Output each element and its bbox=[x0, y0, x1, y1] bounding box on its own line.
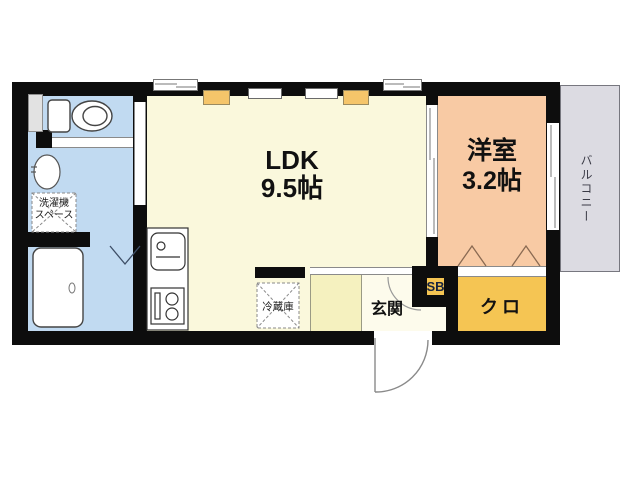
closet-folding-door-mark-left bbox=[458, 246, 486, 266]
western-room-size: 3.2帖 bbox=[438, 166, 546, 196]
balcony-label: バルコニー bbox=[573, 141, 599, 237]
washer-space-line2: スペース bbox=[28, 210, 80, 222]
vanity-sink-icon bbox=[31, 155, 60, 189]
entry-door-arc bbox=[375, 338, 428, 392]
washer-space-label: 洗濯機 スペース bbox=[28, 198, 80, 221]
shoe-box-label: SB bbox=[424, 279, 447, 294]
washer-space-line1: 洗濯機 bbox=[28, 198, 80, 210]
floor-plan: LDK 9.5帖 洋室 3.2帖 玄関 クロ SB 冷蔵庫 洗濯機 スペース バ… bbox=[0, 0, 640, 480]
ldk-name: LDK bbox=[180, 146, 404, 174]
bathroom-folding-door-mark bbox=[110, 246, 140, 264]
bathtub-icon bbox=[33, 248, 83, 327]
ldk-label: LDK 9.5帖 bbox=[180, 146, 404, 202]
entrance-label: 玄関 bbox=[360, 295, 414, 319]
closet-folding-door-mark-right bbox=[512, 246, 540, 266]
ldk-size: 9.5帖 bbox=[180, 174, 404, 202]
toilet-icon bbox=[48, 100, 112, 132]
western-room-label: 洋室 3.2帖 bbox=[438, 136, 546, 196]
western-room-name: 洋室 bbox=[438, 136, 546, 166]
fixtures-layer bbox=[0, 0, 640, 480]
refrigerator-label: 冷蔵庫 bbox=[256, 299, 300, 314]
kitchen-counter-icon bbox=[147, 228, 188, 330]
closet-label: クロ bbox=[458, 293, 546, 319]
